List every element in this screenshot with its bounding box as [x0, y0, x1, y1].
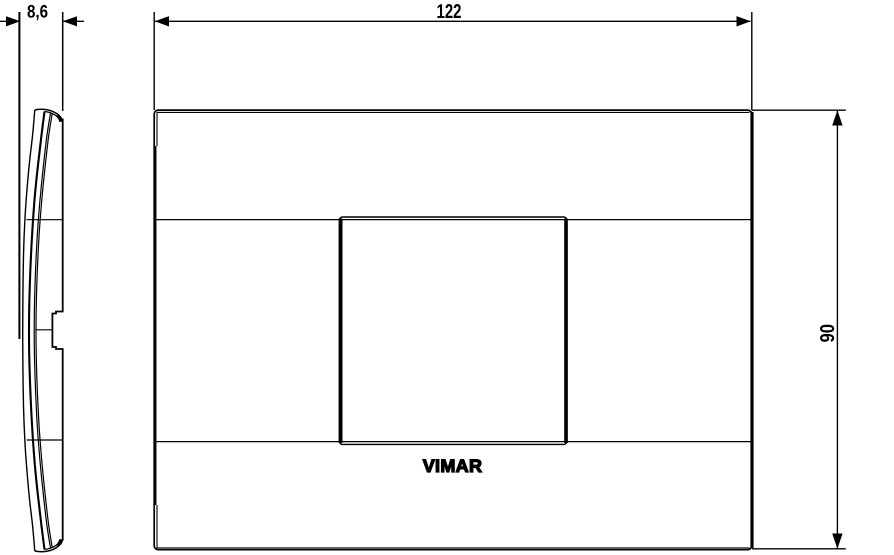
svg-text:8,6: 8,6: [27, 2, 48, 22]
svg-text:VIMAR: VIMAR: [423, 456, 483, 476]
svg-text:122: 122: [437, 1, 462, 23]
svg-text:90: 90: [817, 324, 839, 343]
